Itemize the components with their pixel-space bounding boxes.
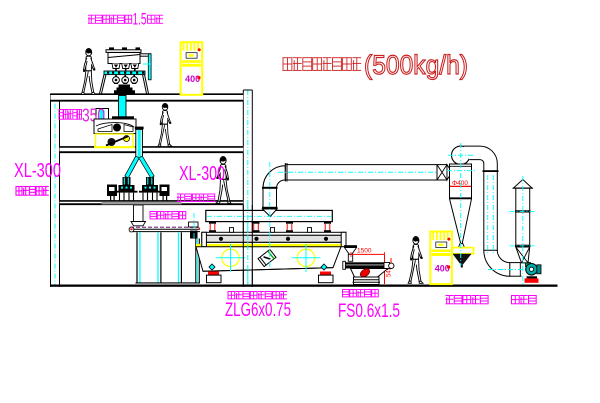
svg-text:1.5: 1.5	[133, 10, 147, 29]
svg-text:ZLG6x0.75: ZLG6x0.75	[225, 300, 291, 321]
svg-text:XL-300: XL-300	[14, 160, 61, 182]
svg-text:1500: 1500	[357, 248, 372, 255]
svg-text:(500kg/h): (500kg/h)	[364, 50, 468, 80]
svg-text:XL-300: XL-300	[179, 163, 225, 185]
svg-text:FS0.6x1.5: FS0.6x1.5	[338, 301, 400, 322]
